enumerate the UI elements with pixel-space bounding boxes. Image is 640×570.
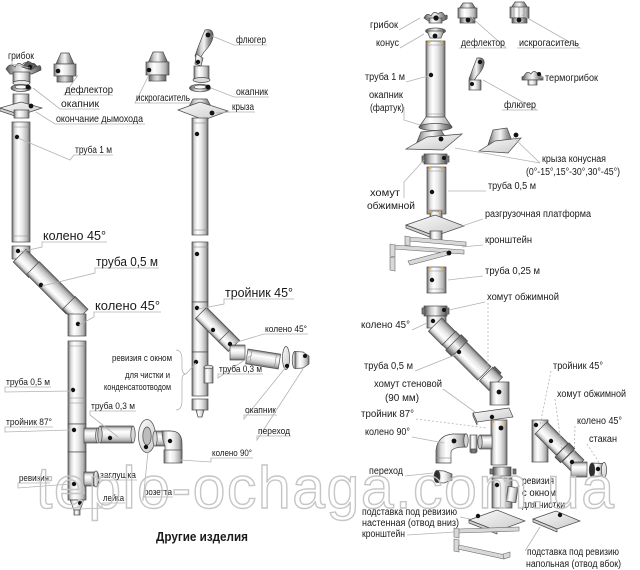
- svg-text:термогрибок: термогрибок: [545, 73, 599, 84]
- svg-text:хомут стеновой: хомут стеновой: [374, 379, 442, 390]
- svg-text:teplo-ochaga.com.ua: teplo-ochaga.com.ua: [36, 455, 616, 521]
- svg-text:флюгер: флюгер: [504, 100, 536, 111]
- svg-text:переход: переход: [258, 426, 291, 436]
- svg-text:колено 45°: колено 45°: [265, 324, 307, 334]
- svg-text:разгрузочная платформа: разгрузочная платформа: [485, 209, 592, 220]
- svg-text:труба 0,5 м: труба 0,5 м: [364, 361, 413, 372]
- svg-text:тройник 45°: тройник 45°: [225, 285, 293, 300]
- svg-text:окапник: окапник: [245, 405, 277, 415]
- svg-text:колено 45°: колено 45°: [577, 416, 622, 427]
- svg-text:труба 0,5 м: труба 0,5 м: [96, 254, 158, 269]
- svg-text:труба 0,3 м: труба 0,3 м: [91, 401, 135, 411]
- svg-text:(90 мм): (90 мм): [385, 393, 419, 404]
- svg-text:искрогаситель: искрогаситель: [519, 38, 579, 49]
- svg-text:кронштейн: кронштейн: [362, 529, 405, 540]
- svg-text:хомут обжимной: хомут обжимной: [557, 389, 626, 400]
- svg-text:труба 0,5 м: труба 0,5 м: [6, 377, 50, 387]
- svg-text:окапник: окапник: [236, 86, 268, 98]
- svg-text:хомут обжимной: хомут обжимной: [487, 292, 559, 303]
- svg-text:грибок: грибок: [8, 50, 34, 62]
- svg-text:Другие изделия: Другие изделия: [156, 529, 248, 544]
- svg-text:тройник 87°: тройник 87°: [6, 417, 52, 427]
- svg-text:крыза конусная: крыза конусная: [542, 154, 606, 165]
- svg-text:подставка под ревизию: подставка под ревизию: [527, 547, 619, 558]
- svg-text:для чистки и: для чистки и: [125, 370, 170, 380]
- svg-text:труба 0,5 м: труба 0,5 м: [488, 181, 536, 192]
- svg-text:хомут: хомут: [370, 188, 401, 199]
- svg-text:(фартук): (фартук): [370, 103, 404, 114]
- svg-text:тройник 87°: тройник 87°: [361, 409, 414, 420]
- svg-text:колено 45°: колено 45°: [43, 228, 106, 243]
- svg-text:обжимной: обжимной: [367, 201, 415, 212]
- svg-text:кронштейн: кронштейн: [485, 235, 532, 246]
- svg-text:грибок: грибок: [370, 20, 399, 31]
- svg-text:окапник: окапник: [61, 98, 99, 110]
- svg-text:колено 45°: колено 45°: [95, 298, 160, 313]
- svg-text:конденсатоотводом: конденсатоотводом: [104, 382, 171, 392]
- svg-text:(0°-15°,15°-30°,30°-45°): (0°-15°,15°-30°,30°-45°): [526, 167, 620, 178]
- svg-text:колено 45°: колено 45°: [361, 320, 410, 331]
- svg-text:конус: конус: [376, 38, 399, 49]
- svg-text:окапник: окапник: [369, 90, 404, 101]
- svg-text:искрогаситель: искрогаситель: [136, 92, 190, 104]
- svg-text:дефлектор: дефлектор: [65, 84, 113, 96]
- svg-text:окончание дымохода: окончание дымохода: [56, 113, 143, 125]
- svg-text:крыза: крыза: [232, 101, 254, 113]
- svg-text:ревизия с окном: ревизия с окном: [112, 353, 172, 363]
- svg-text:флюгер: флюгер: [236, 34, 266, 46]
- svg-text:труба 0,3 м: труба 0,3 м: [219, 364, 262, 374]
- svg-text:колено 90°: колено 90°: [365, 427, 410, 438]
- svg-text:труба 0,25 м: труба 0,25 м: [485, 266, 540, 277]
- svg-text:труба 1 м: труба 1 м: [75, 144, 112, 156]
- svg-text:стакан: стакан: [589, 434, 617, 445]
- svg-text:тройник 45°: тройник 45°: [553, 361, 603, 372]
- svg-text:труба 1 м: труба 1 м: [365, 72, 405, 83]
- svg-text:напольная (отвод вбок): напольная (отвод вбок): [526, 559, 621, 570]
- svg-text:дефлектор: дефлектор: [461, 38, 505, 49]
